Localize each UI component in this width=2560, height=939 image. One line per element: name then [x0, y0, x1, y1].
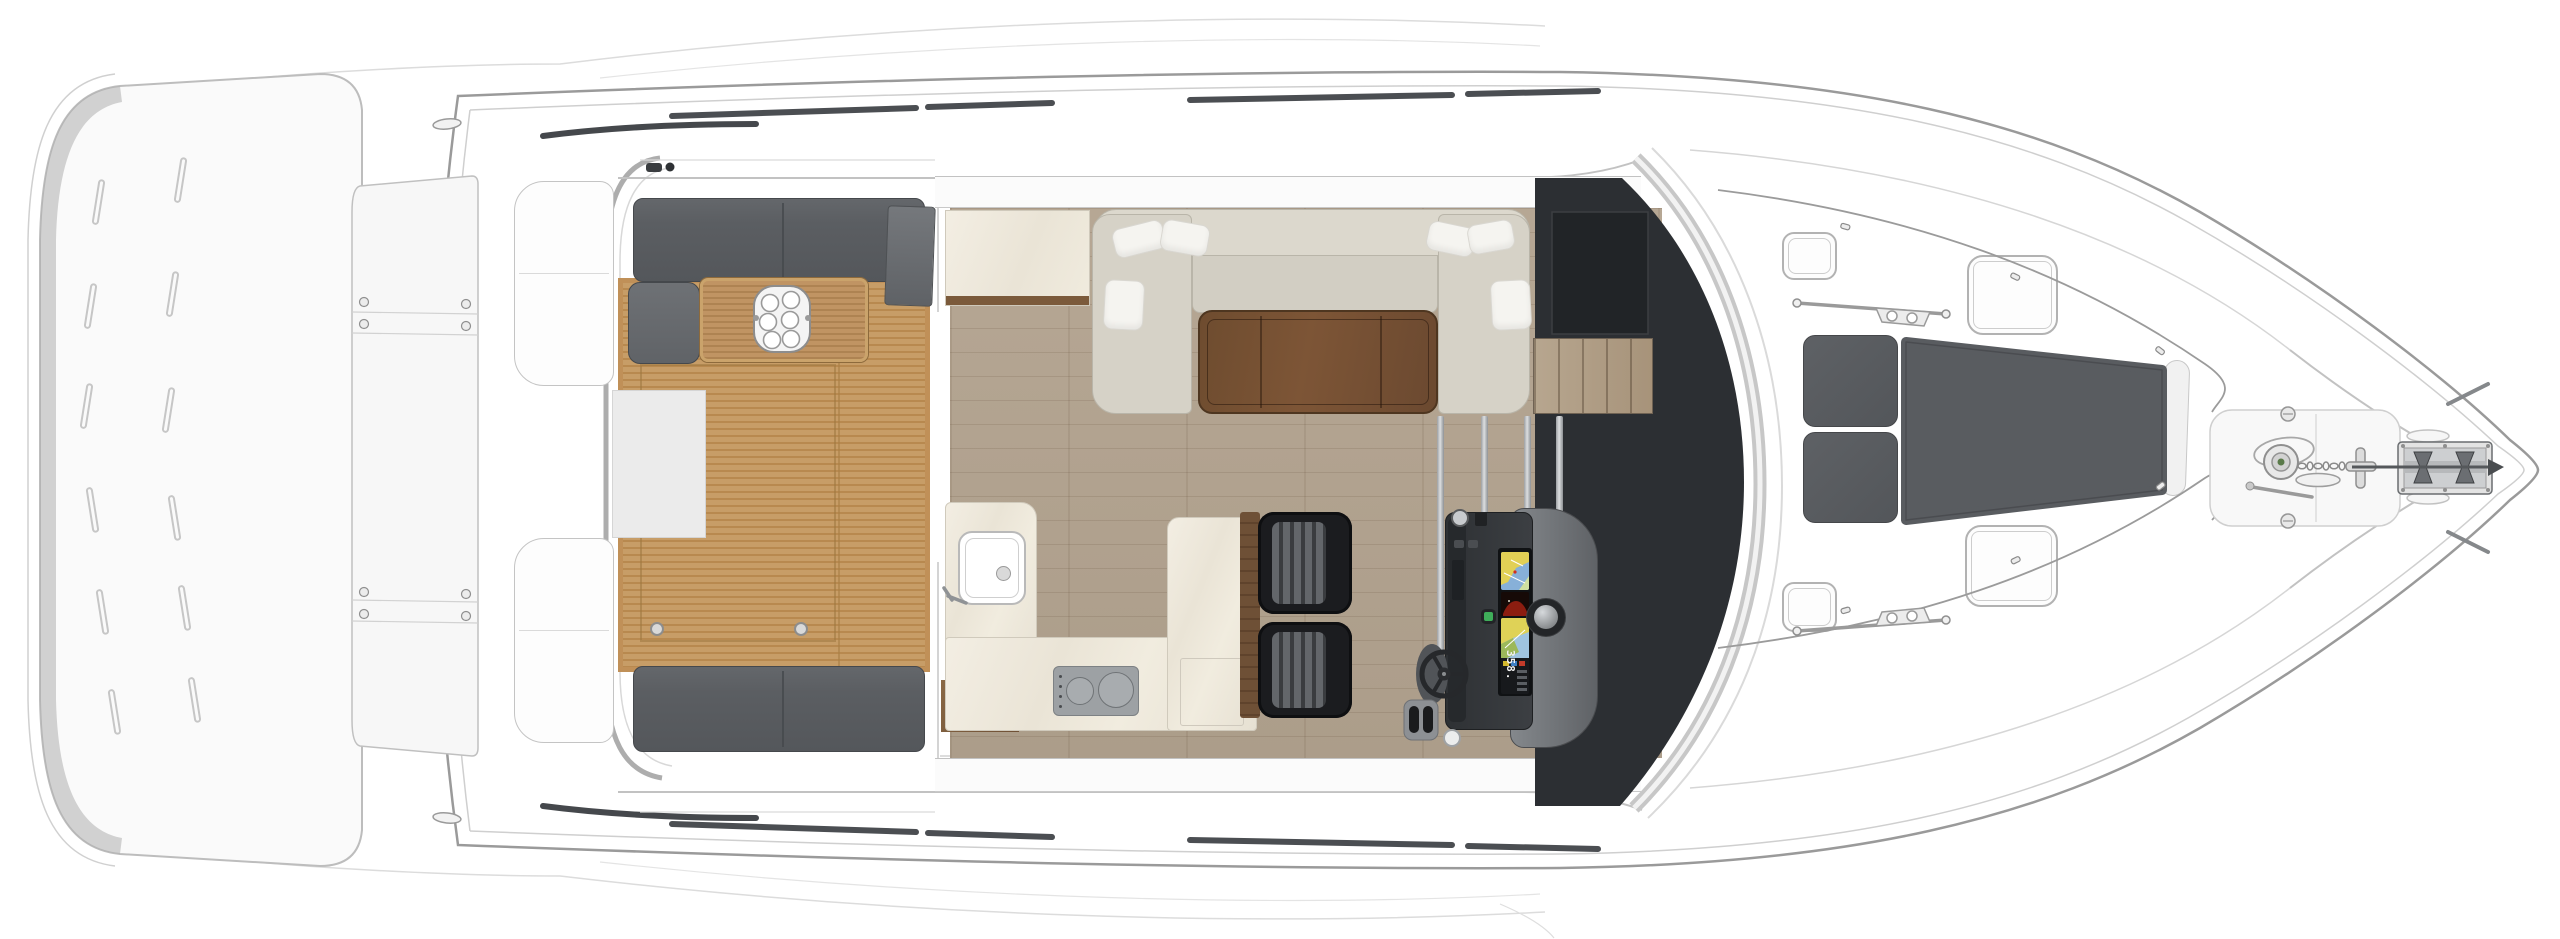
glass-tray: [753, 286, 811, 352]
heading-readout: 358.: [1502, 650, 1517, 712]
sink-faucet: [944, 588, 966, 603]
console-switch[interactable]: [1475, 512, 1487, 526]
cockpit-speaker-icon: [666, 163, 675, 172]
steering-wheel[interactable]: [1416, 644, 1466, 704]
sun-pad-forward[interactable]: [1906, 342, 2162, 520]
grab-rail-starboard[interactable]: [1793, 299, 1950, 326]
detail-overlay: [0, 0, 2560, 939]
windshield-frame: [1634, 148, 1782, 818]
yacht-deck-plan: 358.: [0, 0, 2560, 939]
low-profile-cleat: [2296, 474, 2340, 487]
cockpit-light-fitting: [646, 163, 662, 172]
compass-fitting: [1444, 730, 1460, 746]
console-knob[interactable]: [1452, 510, 1468, 526]
throttle-levers[interactable]: [1404, 700, 1438, 740]
